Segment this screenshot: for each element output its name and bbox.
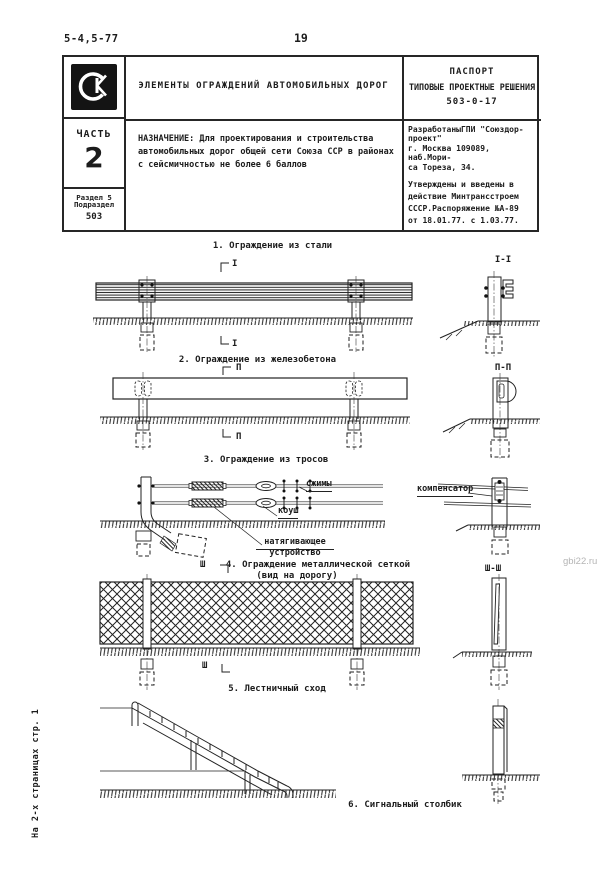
fig2-cut-mark-bottom: П (236, 432, 241, 443)
fig1-section-title: I-I (489, 255, 517, 266)
cable-lower (153, 497, 383, 510)
fig3-label-thimble: коуш (278, 506, 298, 519)
fig3-label-clamps: сжимы (306, 479, 332, 492)
fig4-caption-line1: 4. Ограждение металлической сеткой (210, 560, 426, 571)
fig1-section-drawing (440, 271, 540, 357)
line-art-canvas (0, 0, 604, 877)
fig4-cut-mark-bottom: Ш (202, 661, 207, 672)
fig5-stairway-drawing (100, 702, 336, 798)
fig1-cut-mark-bottom: I (232, 339, 237, 350)
fig4-caption-line2: (вид на дорогу) (230, 571, 364, 582)
document-page: 5-4,5-77 19 ЭЛЕМЕНТЫ ОГРАЖДЕНИЙ АВТОМОБИ… (0, 0, 604, 877)
fig2-concrete-guardrail-drawing (100, 367, 540, 460)
fig3-label-tensioner-line2: устройство (256, 548, 334, 559)
side-note-vertical: На 2-х страницах стр. 1 (31, 686, 46, 838)
fig3-label-compensator: компенсатор (417, 484, 473, 497)
fig2-section-drawing (443, 373, 540, 460)
fig5-caption: 5. Лестничный сход (190, 684, 364, 695)
fig1-caption: 1. Ограждение из стали (165, 241, 380, 252)
cable-upper (153, 480, 383, 493)
fig6-caption: 6. Сигнальный столбик (315, 800, 495, 811)
railing-balusters (150, 711, 278, 788)
fig6-signal-post-drawing (462, 699, 540, 804)
fig1-steel-guardrail-drawing (93, 263, 540, 357)
fig1-cut-mark-top: I (232, 259, 237, 270)
fig2-cut-mark-top: П (236, 363, 241, 374)
watermark: gbi22.ru (563, 556, 597, 567)
fig3-caption: 3. Ограждение из тросов (160, 455, 372, 466)
fig4-section-drawing (453, 574, 532, 690)
fig4-section-title: Ш-Ш (477, 564, 509, 575)
fig4-mesh-fence-drawing (100, 565, 532, 690)
fig2-caption: 2. Ограждение из железобетона (150, 355, 365, 366)
fig4-cut-mark-top: Ш (200, 560, 205, 571)
fig2-section-title: П-П (488, 363, 518, 374)
